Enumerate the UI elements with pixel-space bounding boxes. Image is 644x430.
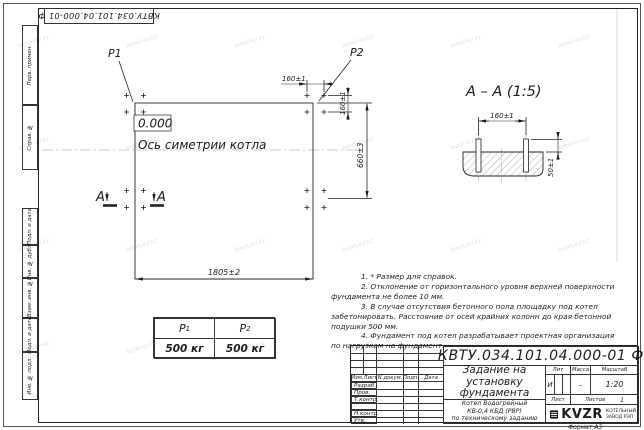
p2-subscript: 2 xyxy=(246,325,250,333)
dim-width-660: 660±3 xyxy=(317,103,372,199)
product-line: по техническому заданию xyxy=(451,415,537,422)
section-cut-letter-left: А xyxy=(95,190,105,205)
load-table-value-p2: 500 кг xyxy=(214,338,276,359)
load-table-value-p1: 500 кг xyxy=(154,338,215,359)
foundation-slab xyxy=(463,152,543,176)
tb-product: Котел Водогрейный КВ-0,4 КБД (РВР) по те… xyxy=(443,399,546,424)
kvzr-logo-icon xyxy=(550,408,558,421)
level-mark: 0.000 xyxy=(138,117,173,131)
dim-text: 660±3 xyxy=(356,142,365,168)
note-3: 3. В случае отсутствия бетонного пола пл… xyxy=(331,302,615,332)
p1-subscript: 1 xyxy=(186,325,190,333)
dim-length-1805: 1805±2 xyxy=(136,268,312,279)
tb-row-utv: Утв. xyxy=(351,417,377,424)
plan-view: Р1 Р2 0.000 Ось симетрии котла А А 160±1 xyxy=(42,46,372,279)
product-line: КВ-0,4 КБД (РВР) xyxy=(451,408,537,415)
kvzr-logo-text: KVZR xyxy=(561,407,603,422)
drawing-sheet: kotel-kv.kzkotel-kv.kzkotel-kv.kzkotel-k… xyxy=(0,0,644,430)
section-view: А – А (1:5) 160±1 xyxy=(463,84,562,182)
load-table-header-p1: Р1 xyxy=(154,318,215,339)
dim-bolt-spacing-vertical: 160±1 xyxy=(328,87,352,120)
title-block-designation: КВТУ.034.101.04.000-01 Ф xyxy=(443,346,639,366)
notes-block: 1. * Размер для справок. 2. Отклонение о… xyxy=(331,272,615,351)
note-2: 2. Отклонение от горизонтального уровня … xyxy=(331,282,615,302)
tb-scale-value: 1:20 xyxy=(590,374,639,395)
anchor-bolt-right xyxy=(524,139,529,172)
tb-row-empty xyxy=(351,403,377,410)
anchor-bolt-cluster-bottom-right xyxy=(305,188,327,210)
load-table: Р1 Р2 500 кг 500 кг xyxy=(153,317,275,358)
axis-of-symmetry-label: Ось симетрии котла xyxy=(138,138,266,152)
dim-text: 160±1 xyxy=(282,75,306,83)
section-cut-letter-right: А xyxy=(156,190,166,205)
load-point-p2-label: Р2 xyxy=(350,46,364,59)
tb-head-podp: Подп. xyxy=(403,374,419,382)
p1-symbol: Р xyxy=(179,322,186,335)
dim-section-bolt-spacing: 160±1 xyxy=(479,112,527,135)
anchor-bolt-left xyxy=(476,139,481,172)
p2-symbol: Р xyxy=(239,322,246,335)
format-note: Формат А3 xyxy=(568,424,602,430)
section-title: А – А (1:5) xyxy=(465,84,542,100)
load-point-p1-label: Р1 xyxy=(108,47,122,60)
tb-mass-value: – xyxy=(570,374,591,395)
logo-subtitle-line: ЗАВОД РЭП xyxy=(606,415,636,420)
logo-subtitle-line: КОТЕЛЬНЫЙ xyxy=(606,409,636,414)
tb-doc-title: Задание на установку фундамента xyxy=(443,365,546,400)
load-table-header-p2: Р2 xyxy=(214,318,276,339)
tb-logo-cell: KVZR КОТЕЛЬНЫЙ ЗАВОД РЭП xyxy=(545,404,639,424)
tb-sheets-value: 1 xyxy=(620,397,624,404)
dim-bolt-spacing-horizontal: 160±1 xyxy=(281,75,332,92)
tb-head-data: Дата xyxy=(418,374,444,382)
tb-sheets-label: Листов xyxy=(585,397,605,403)
tb-row-tkontr: Т.контр. xyxy=(351,396,377,403)
tb-head-izm-list: Изм.Лист xyxy=(351,374,377,382)
dim-text: 1805±2 xyxy=(208,268,240,277)
tb-row-nkontr: Н.контр. xyxy=(351,410,377,417)
tb-row-razrab: Разраб. xyxy=(351,382,377,389)
product-line: Котел Водогрейный xyxy=(451,400,537,407)
tb-row-prov: Пров. xyxy=(351,389,377,396)
tb-head-n-dokum: N докум. xyxy=(376,374,404,382)
note-1: 1. * Размер для справок. xyxy=(331,272,615,282)
title-block: КВТУ.034.101.04.000-01 Ф Изм.Лист N доку… xyxy=(350,345,638,423)
dim-text: 160±1 xyxy=(490,112,514,120)
dim-text: 50±1 xyxy=(547,158,555,177)
